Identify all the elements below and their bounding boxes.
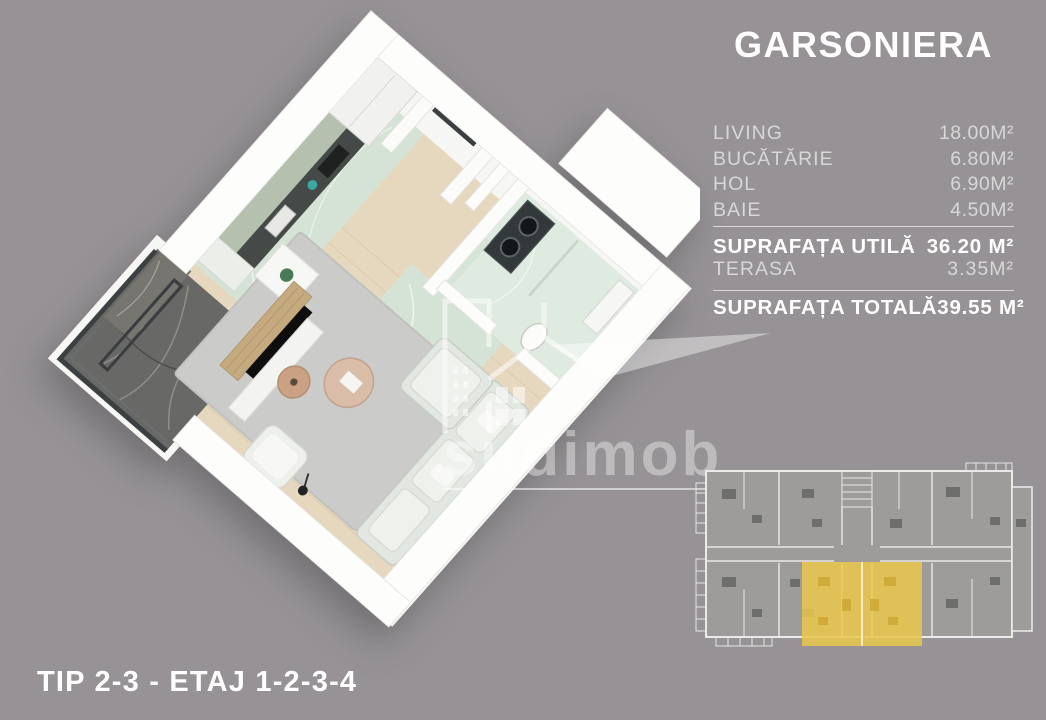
info-panel-header: GARSONIERA	[713, 24, 1014, 66]
balcony-hatch-left	[696, 483, 706, 631]
useful-area-row: SUPRAFAȚA UTILĂ 36.20 M²	[713, 235, 1014, 259]
room-label: BUCĂTĂRIE	[713, 147, 834, 173]
terrace-label: TERASA	[713, 258, 797, 281]
room-row-bucatarie: BUCĂTĂRIE 6.80M²	[713, 147, 1014, 173]
room-label: LIVING	[713, 121, 783, 147]
total-area-row: SUPRAFAȚA TOTALĂ 39.55 M²	[713, 296, 1014, 320]
building-floor-plan-thumbnail	[694, 459, 1038, 655]
room-value: 4.50M²	[950, 198, 1014, 224]
room-label: BAIE	[713, 198, 761, 224]
terrace-row: TERASA 3.35M²	[713, 258, 1014, 281]
room-value: 6.80M²	[950, 147, 1014, 173]
room-area-list: LIVING 18.00M² BUCĂTĂRIE 6.80M² HOL 6.90…	[713, 121, 1014, 223]
apartment-3d-render	[0, 0, 700, 690]
divider-bottom	[713, 290, 1014, 291]
page-title: GARSONIERA	[713, 24, 1014, 66]
terrace-value: 3.35M²	[947, 258, 1014, 281]
highlighted-units	[802, 562, 922, 646]
useful-area-label: SUPRAFAȚA UTILĂ	[713, 235, 916, 259]
useful-area-value: 36.20 M²	[927, 235, 1014, 259]
listing-sheet: { "title": "GARSONIERA", "rooms": [ {"la…	[0, 0, 1046, 720]
room-row-baie: BAIE 4.50M²	[713, 198, 1014, 224]
divider-top	[713, 226, 1014, 227]
room-row-hol: HOL 6.90M²	[713, 172, 1014, 198]
type-floor-label: TIP 2-3 - ETAJ 1-2-3-4	[37, 666, 357, 699]
total-area-value: 39.55 M²	[937, 296, 1024, 320]
room-row-living: LIVING 18.00M²	[713, 121, 1014, 147]
room-label: HOL	[713, 172, 756, 198]
total-area-label: SUPRAFAȚA TOTALĂ	[713, 296, 937, 320]
room-value: 18.00M²	[939, 121, 1014, 147]
room-value: 6.90M²	[950, 172, 1014, 198]
